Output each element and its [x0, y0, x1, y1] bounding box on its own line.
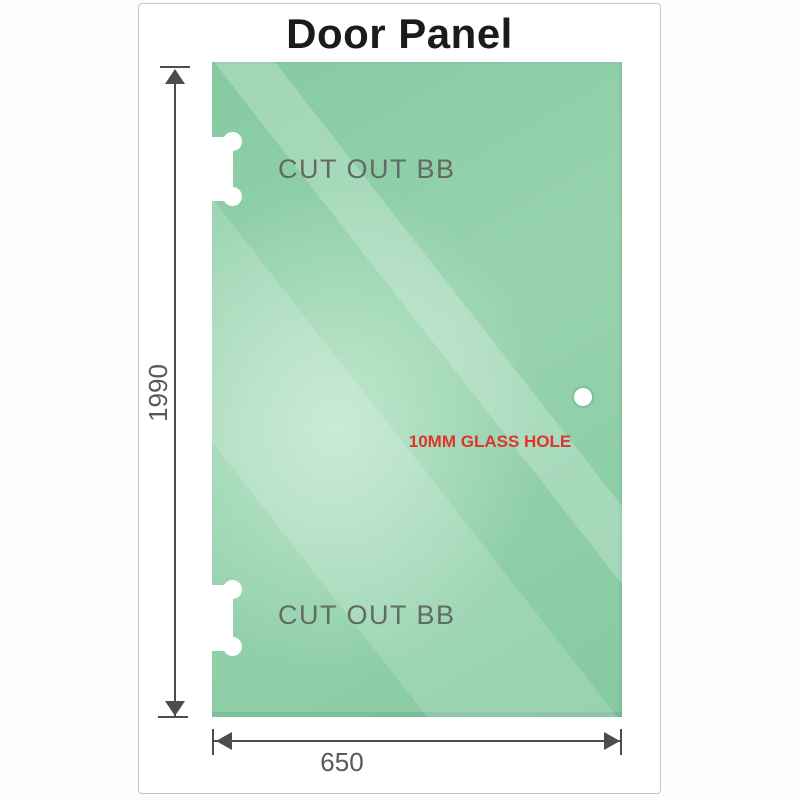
width-dim-label: 650: [292, 747, 392, 778]
arrow-up-icon: [165, 69, 185, 84]
height-dim-label: 1990: [144, 343, 172, 443]
cutout-label-top: CUT OUT BB: [278, 154, 456, 185]
arrow-left-icon: [216, 732, 232, 750]
height-dim-line: [174, 70, 176, 716]
cutout-label-bottom: CUT OUT BB: [278, 600, 456, 631]
height-dim-top-tick: [160, 66, 190, 68]
cutout-drill-circle-icon: [223, 580, 242, 599]
arrow-right-icon: [604, 732, 620, 750]
hinge-cutout-top: [212, 137, 233, 201]
cutout-drill-circle-icon: [223, 187, 242, 206]
width-dim-right-tick: [620, 729, 622, 755]
cutout-drill-circle-icon: [223, 132, 242, 151]
hinge-cutout-bottom: [212, 585, 233, 651]
glass-panel: CUT OUT BB CUT OUT BB 10MM GLASS HOLE: [212, 62, 622, 717]
glass-hole-label: 10MM GLASS HOLE: [405, 432, 575, 452]
page: Door Panel CUT OUT BB CUT OUT BB 10MM GL…: [0, 0, 800, 800]
glass-hole: [572, 386, 594, 408]
page-title: Door Panel: [138, 10, 661, 58]
width-dim-line: [213, 740, 621, 742]
height-dim-bottom-tick: [158, 716, 188, 718]
arrow-down-icon: [165, 701, 185, 716]
width-dim-left-tick: [212, 729, 214, 755]
cutout-drill-circle-icon: [223, 637, 242, 656]
